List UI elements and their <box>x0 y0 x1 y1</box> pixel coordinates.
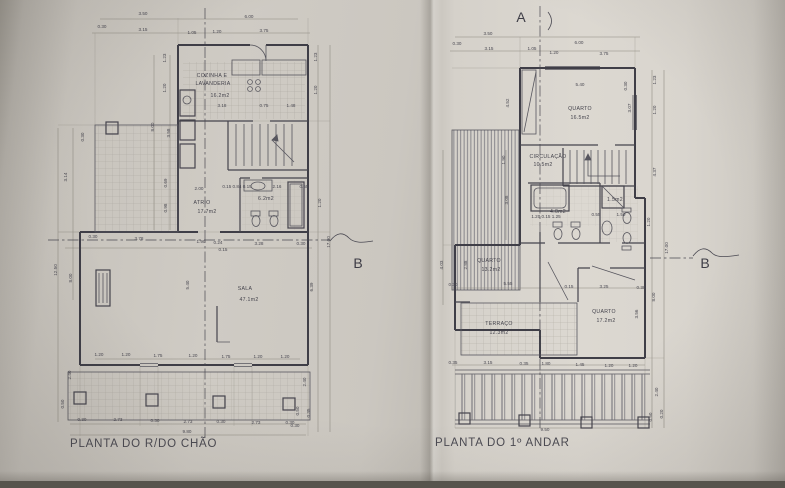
photo-vignette <box>0 0 785 488</box>
photographed-blueprint-sheet: 3.506.000.303.151.051.203.751.231.201.23… <box>0 0 785 488</box>
photo-bottom-edge <box>0 481 785 488</box>
bottom-shadow <box>0 471 785 481</box>
